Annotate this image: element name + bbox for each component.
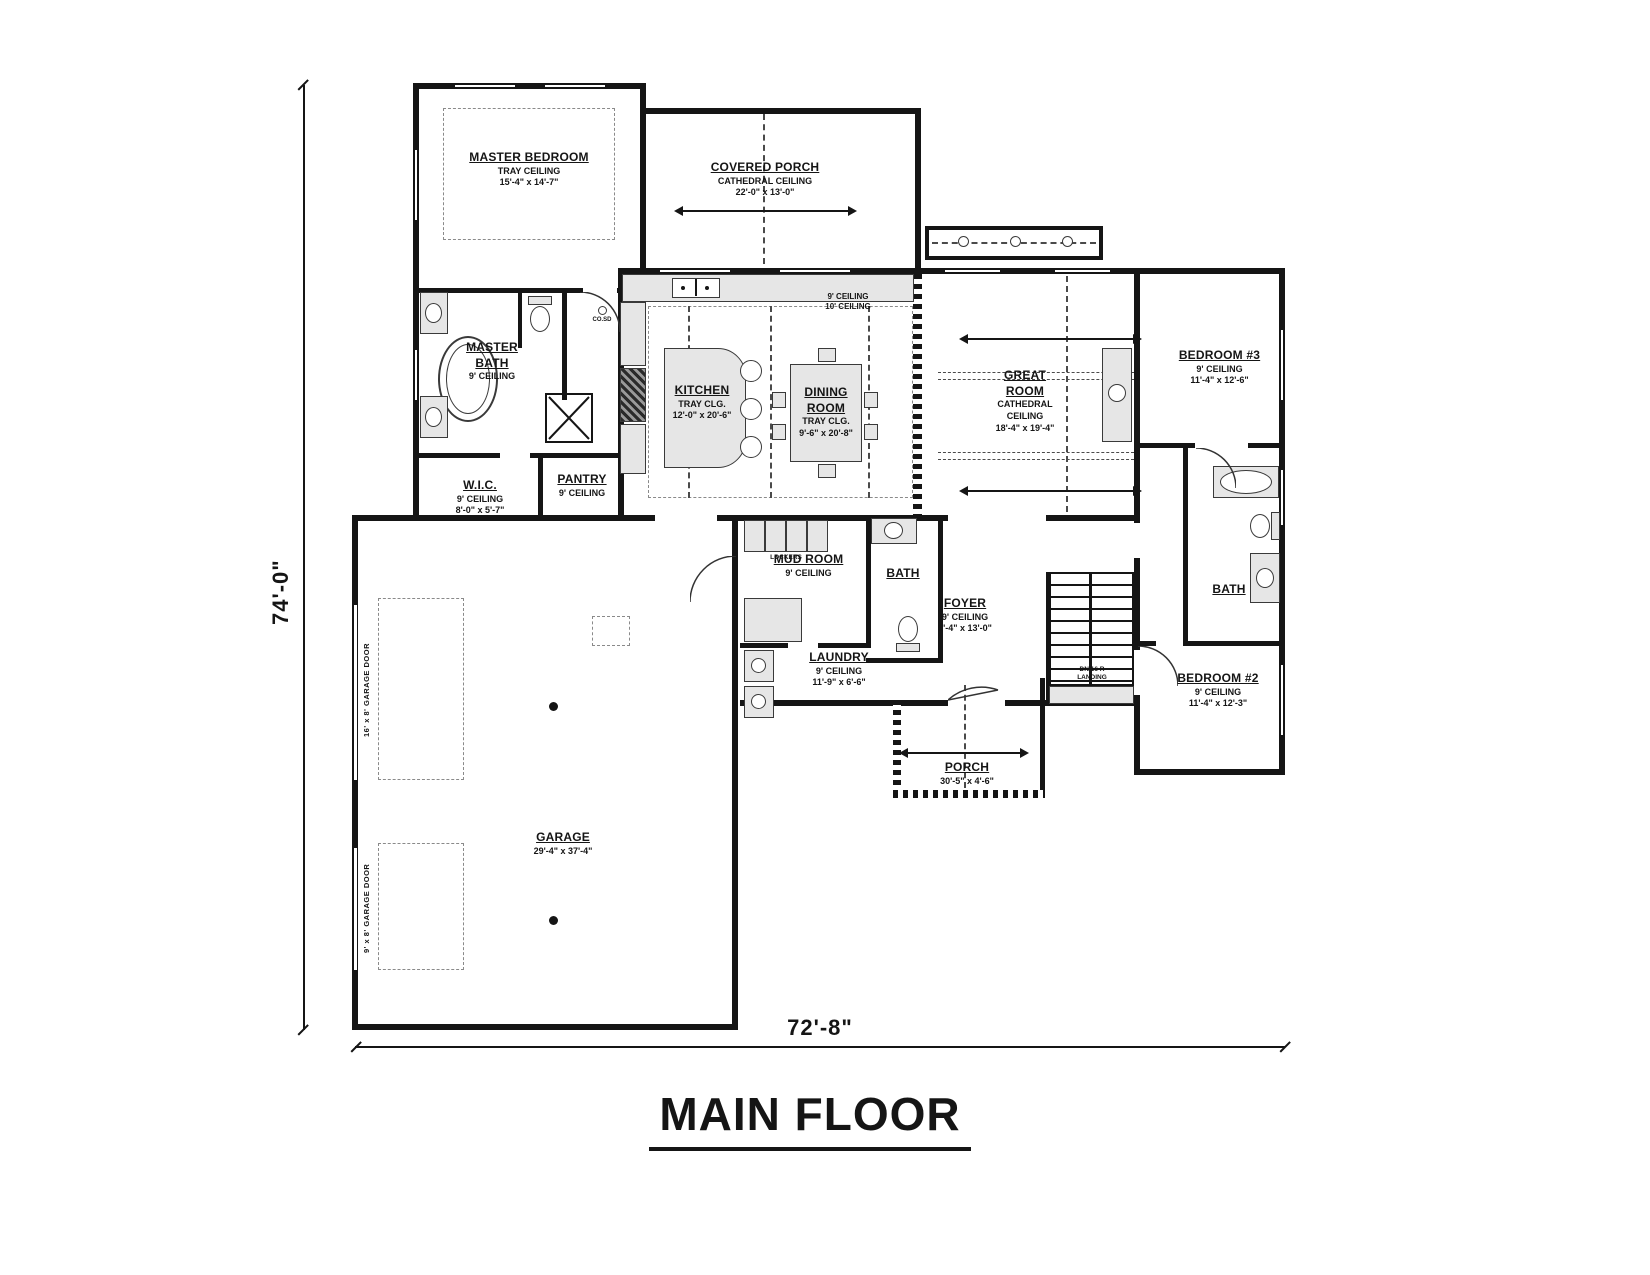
room-size: 12'-0" x 20'-6" <box>648 410 756 422</box>
plan-title: MAIN FLOOR <box>600 1085 1020 1151</box>
bedroom-3-label: BEDROOM #3 9' CEILING 11'-4" x 12'-6" <box>1162 348 1277 387</box>
dimension-line-horizontal <box>355 1046 1285 1048</box>
room-ceiling: 9' CEILING <box>543 488 621 500</box>
attic-access <box>592 616 630 646</box>
room-name: FOYER <box>920 596 1010 612</box>
chair <box>818 348 836 362</box>
covered-porch-label: COVERED PORCH CATHEDRAL CEILING 22'-0" x… <box>700 160 830 199</box>
room-name: GARAGE <box>498 830 628 846</box>
room-name: KITCHEN <box>648 383 756 399</box>
stairs-dn: DN 16 R <box>1052 666 1132 674</box>
room-name: BATH <box>1196 582 1262 598</box>
garage-opener-dot <box>549 702 558 711</box>
room-name: DINING ROOM <box>790 385 862 416</box>
garage-label: GARAGE 29'-4" x 37'-4" <box>498 830 628 857</box>
room-name: LAUNDRY <box>778 650 900 666</box>
beam-detail-post <box>1062 236 1073 247</box>
room-name: BEDROOM #2 <box>1158 671 1278 687</box>
window <box>414 150 418 220</box>
ridge-line-great-room <box>1066 276 1068 512</box>
room-size: 29'-4" x 37'-4" <box>498 846 628 858</box>
window <box>1280 665 1284 735</box>
chair <box>864 392 878 408</box>
wall <box>740 643 788 648</box>
window <box>545 84 605 88</box>
stairs-label: DN 16 R LANDING <box>1052 666 1132 683</box>
ceiling-break-wall <box>913 274 922 516</box>
sink-bowl <box>425 303 442 323</box>
width-dimension: 72'-8" <box>740 1014 900 1043</box>
chair <box>772 392 786 408</box>
door-swing <box>690 556 738 604</box>
wall <box>413 83 646 89</box>
floor-plan: 16' x 8' GARAGE DOOR 9' x 8' GARAGE DOOR <box>0 0 1650 1275</box>
room-name: W.I.C. <box>425 478 535 494</box>
room-name: MUD ROOM <box>756 552 861 568</box>
shower-x <box>547 395 591 441</box>
door-swing <box>1196 448 1236 488</box>
garage-door-opening-large <box>353 605 358 780</box>
room-ceiling: 9' CEILING <box>1158 687 1278 699</box>
stairs-landing: LANDING <box>1052 674 1132 682</box>
bench <box>744 598 802 642</box>
ceiling-note: 9' CEILING 10' CEILING <box>806 292 890 313</box>
wall <box>1134 268 1140 523</box>
door-swing <box>578 292 620 334</box>
ceiling-beam <box>938 452 1134 460</box>
slope-arrow <box>908 752 1020 754</box>
bedroom-2-label: BEDROOM #2 9' CEILING 11'-4" x 12'-3" <box>1158 671 1278 710</box>
chair <box>818 464 836 478</box>
room-size: 11'-4" x 12'-3" <box>1158 698 1278 710</box>
window <box>1280 470 1284 525</box>
pantry-label: PANTRY 9' CEILING <box>543 472 621 499</box>
wall <box>1040 678 1045 796</box>
wall <box>1248 443 1285 448</box>
room-size: 11'-9" x 6'-6" <box>778 677 900 689</box>
room-size: 11'-4" x 12'-6" <box>1162 375 1277 387</box>
room-name: PORCH <box>912 760 1022 776</box>
faucet-dot <box>705 286 709 290</box>
toilet-tank <box>528 296 552 305</box>
stool <box>740 360 762 382</box>
stool <box>740 436 762 458</box>
window <box>660 269 730 273</box>
window <box>1055 269 1110 273</box>
slope-arrow <box>968 490 1133 492</box>
room-name: MASTER BATH <box>452 340 532 371</box>
wall <box>1134 558 1140 650</box>
garage-door-small-outline <box>378 843 464 970</box>
wall <box>640 108 921 114</box>
beam-detail-post <box>1010 236 1021 247</box>
wall <box>518 288 522 348</box>
room-size: 22'-0" x 13'-0" <box>700 187 830 199</box>
height-dimension: 74'-0" <box>268 505 294 625</box>
room-ceiling: TRAY CLG. <box>648 399 756 411</box>
porch-rail <box>893 790 1045 798</box>
beam-detail-post <box>958 236 969 247</box>
foyer-label: FOYER 9' CEILING 8'-4" x 13'-0" <box>920 596 1010 635</box>
slope-arrow <box>968 338 1133 340</box>
washer-door <box>751 658 766 673</box>
porch-label: PORCH 30'-5" x 4'-6" <box>912 760 1022 787</box>
wall <box>562 288 567 400</box>
garage-opener-dot <box>549 916 558 925</box>
window <box>1280 330 1284 400</box>
room-size: 30'-5" x 4'-6" <box>912 776 1022 788</box>
toilet-tank <box>1271 512 1280 540</box>
shower <box>545 393 593 443</box>
room-ceiling: 9' CEILING <box>756 568 861 580</box>
room-size: 9'-6" x 20'-8" <box>790 428 862 440</box>
wall <box>1134 695 1140 775</box>
faucet-dot <box>681 286 685 290</box>
room-size: 8'-4" x 13'-0" <box>920 623 1010 635</box>
bath-hall-label: BATH <box>872 566 934 582</box>
cabinet <box>620 302 646 366</box>
dining-room-label: DINING ROOM TRAY CLG. 9'-6" x 20'-8" <box>790 385 862 440</box>
plan-title-text: MAIN FLOOR <box>649 1085 970 1151</box>
room-name: GREAT ROOM <box>988 368 1062 399</box>
dryer-door <box>751 694 766 709</box>
room-ceiling: TRAY CLG. <box>790 416 862 428</box>
wic-label: W.I.C. 9' CEILING 8'-0" x 5'-7" <box>425 478 535 517</box>
great-room-label: GREAT ROOM CATHEDRAL CEILING 18'-4" x 19… <box>988 368 1062 434</box>
kitchen-label: KITCHEN TRAY CLG. 12'-0" x 20'-6" <box>648 383 756 422</box>
slope-arrow <box>683 210 848 212</box>
window <box>780 269 850 273</box>
sink-bowl <box>884 522 903 539</box>
garage-door-opening-small <box>353 848 358 970</box>
room-size: 8'-0" x 5'-7" <box>425 505 535 517</box>
laundry-label: LAUNDRY 9' CEILING 11'-9" x 6'-6" <box>778 650 900 689</box>
refrigerator <box>620 368 646 422</box>
room-ceiling: 9' CEILING <box>425 494 535 506</box>
room-name: BATH <box>872 566 934 582</box>
cabinet <box>620 424 646 474</box>
ceiling-note-b: 10' CEILING <box>806 302 890 312</box>
room-ceiling: CATHEDRAL CEILING <box>700 176 830 188</box>
master-bath-label: MASTER BATH 9' CEILING <box>452 340 532 383</box>
wall <box>1134 769 1285 775</box>
wall <box>818 643 870 648</box>
master-bedroom-label: MASTER BEDROOM TRAY CEILING 15'-4" x 14'… <box>468 150 590 189</box>
door-swing-front <box>948 652 1004 702</box>
room-name: MASTER BEDROOM <box>468 150 590 166</box>
room-name: BEDROOM #3 <box>1162 348 1277 364</box>
garage-door-small-label: 9' x 8' GARAGE DOOR <box>362 848 371 968</box>
dimension-line-vertical <box>303 85 305 1030</box>
mud-room-label: MUD ROOM 9' CEILING <box>756 552 861 579</box>
room-ceiling: TRAY CEILING <box>468 166 590 178</box>
window <box>414 350 418 400</box>
ceiling-note-a: 9' CEILING <box>806 292 890 302</box>
window <box>455 84 515 88</box>
toilet-bowl <box>898 616 918 642</box>
garage-door-large-outline <box>378 598 464 780</box>
room-name: COVERED PORCH <box>700 160 830 176</box>
wall <box>938 515 943 663</box>
stair-landing <box>1049 686 1134 704</box>
room-ceiling: CATHEDRAL CEILING <box>988 399 1062 422</box>
window <box>945 269 1000 273</box>
wall <box>915 108 921 274</box>
room-ceiling: 9' CEILING <box>1162 364 1277 376</box>
lockers <box>744 520 828 552</box>
chair <box>864 424 878 440</box>
room-size: 15'-4" x 14'-7" <box>468 177 590 189</box>
wall <box>1183 641 1285 646</box>
chair <box>772 424 786 440</box>
toilet-bowl <box>530 306 550 332</box>
room-size: 18'-4" x 19'-4" <box>988 423 1062 435</box>
wall <box>1183 443 1188 646</box>
sink-bowl <box>425 407 442 427</box>
fireplace-flue <box>1108 384 1126 402</box>
room-ceiling: 9' CEILING <box>778 666 900 678</box>
bath-right-label: BATH <box>1196 582 1262 598</box>
room-ceiling: 9' CEILING <box>452 371 532 383</box>
room-ceiling: 9' CEILING <box>920 612 1010 624</box>
room-name: PANTRY <box>543 472 621 488</box>
toilet-bowl <box>1250 514 1270 538</box>
garage-door-large-label: 16' x 8' GARAGE DOOR <box>362 612 371 767</box>
